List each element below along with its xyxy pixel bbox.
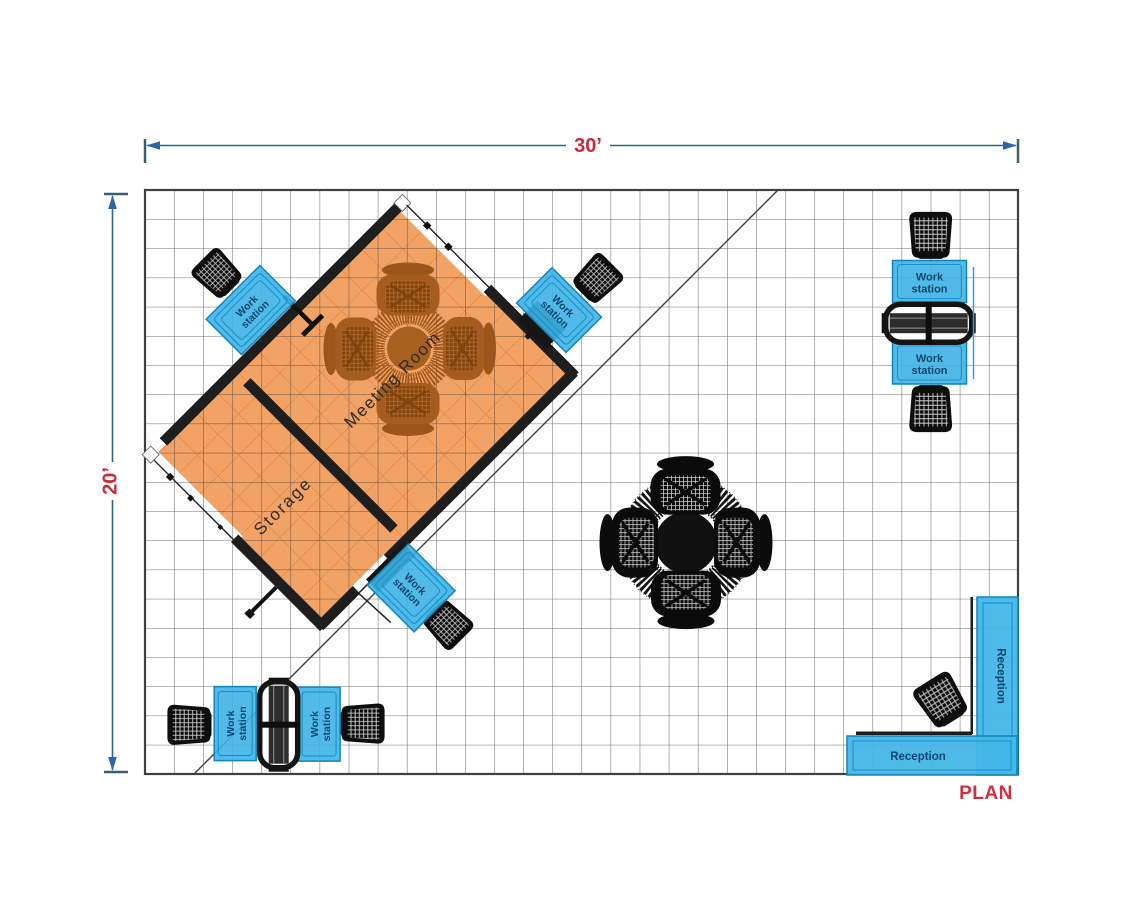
svg-text:station: station [321, 707, 333, 741]
svg-text:Reception: Reception [890, 751, 946, 763]
svg-text:Work: Work [309, 711, 321, 737]
svg-text:30’: 30’ [574, 135, 602, 157]
svg-text:Work: Work [916, 353, 944, 365]
svg-text:station: station [911, 284, 947, 296]
svg-text:Reception: Reception [995, 648, 1007, 704]
svg-text:Work: Work [916, 272, 944, 284]
svg-text:20’: 20’ [100, 467, 122, 495]
svg-text:Work: Work [225, 710, 237, 736]
svg-text:PLAN: PLAN [959, 783, 1013, 804]
svg-text:station: station [237, 706, 249, 740]
svg-text:station: station [911, 365, 947, 377]
